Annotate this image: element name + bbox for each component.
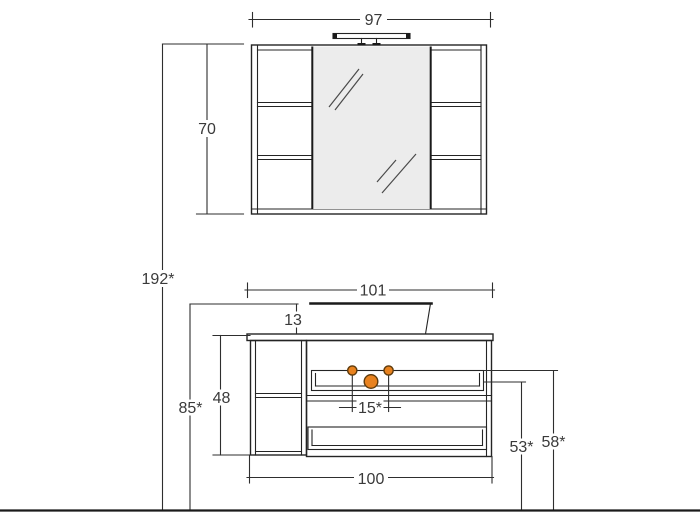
dim-cabinet-height-label: 48 — [213, 390, 231, 407]
countertop — [247, 334, 493, 341]
mirror-cabinet-right-shelves — [432, 103, 482, 160]
mirror-door — [312, 47, 432, 210]
dim-mirror-width-label: 97 — [365, 12, 383, 29]
mirror-cabinet — [252, 34, 487, 215]
dim-knob-spacing-label: 15* — [358, 400, 382, 417]
drawer-knob — [384, 366, 393, 375]
washbasin — [311, 304, 432, 335]
light-fixture — [333, 34, 410, 46]
drawer-knobs — [348, 366, 394, 388]
dim-total-height-label: 192* — [142, 271, 175, 288]
mirror-cabinet-left-shelves — [258, 103, 312, 160]
dim-basin-height-label: 13 — [284, 312, 302, 329]
drawer-knob — [348, 366, 357, 375]
open-shelf-unit — [251, 341, 307, 456]
dim-worktop-width-label: 101 — [360, 283, 387, 300]
dim-cabinet-width-label: 100 — [358, 471, 385, 488]
top-drawer-recess — [312, 371, 484, 391]
dim-clearance-58-label: 58* — [541, 434, 565, 451]
dim-clearance-53-label: 53* — [509, 439, 533, 456]
dim-worktop-height-label: 85* — [178, 400, 202, 417]
drawing-canvas: 97 70 192* 101 13 48 85* 15* 100 53* 58* — [0, 0, 700, 524]
technical-drawing: 97 70 192* 101 13 48 85* 15* 100 53* 58* — [0, 0, 700, 524]
dim-mirror-height-label: 70 — [198, 121, 216, 138]
drawer-unit — [307, 341, 492, 457]
bottom-drawer-recess — [308, 427, 487, 450]
drawer-knob — [364, 375, 378, 389]
